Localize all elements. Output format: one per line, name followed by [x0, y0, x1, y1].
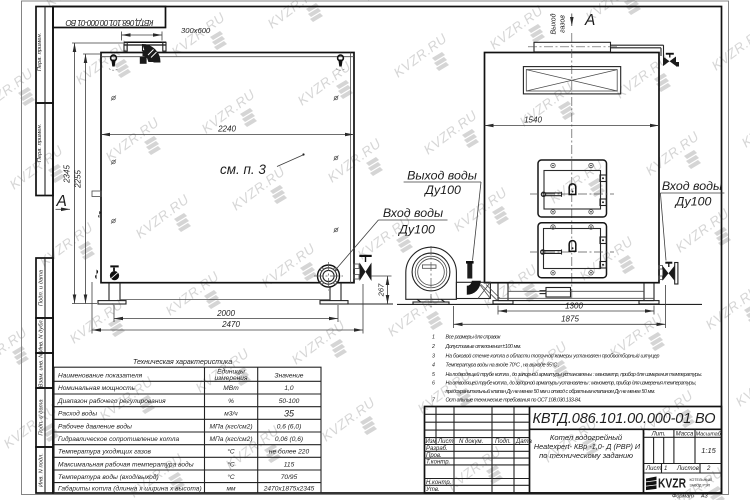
svg-text:по техническому заданию: по техническому заданию: [539, 451, 633, 460]
svg-text:Значение: Значение: [275, 373, 304, 380]
svg-text:1300: 1300: [565, 301, 583, 310]
svg-text:Листов: Листов: [676, 466, 699, 472]
svg-text:Формат: Формат: [672, 494, 694, 500]
svg-text:На подводящей трубе котла: На подводящей трубе котла , до запорной …: [446, 371, 703, 378]
svg-text:115: 115: [284, 461, 295, 468]
svg-text:Котел водогрейный: Котел водогрейный: [550, 433, 623, 442]
svg-text:2: 2: [431, 344, 435, 350]
svg-text:Пров.: Пров.: [426, 453, 442, 459]
svg-text:1,0: 1,0: [284, 385, 293, 392]
svg-text:Лит.: Лит.: [651, 431, 666, 437]
svg-text:Лист: Лист: [645, 466, 661, 472]
svg-text:1: 1: [432, 335, 435, 341]
svg-text:Инв. N дубл.: Инв. N дубл.: [39, 319, 45, 353]
svg-text:Ду100: Ду100: [674, 195, 712, 209]
svg-text:м3/ч: м3/ч: [224, 411, 238, 418]
svg-text:Разраб.: Разраб.: [426, 446, 448, 452]
svg-text:35: 35: [284, 409, 295, 419]
svg-text:Инв. N подл.: Инв. N подл.: [39, 453, 45, 487]
svg-text:измерения: измерения: [215, 375, 248, 382]
svg-text:предохранительный клапан Ду: предохранительный клапан Ду не менее 50 …: [446, 388, 656, 395]
svg-text:%: %: [228, 398, 234, 405]
svg-text:Перв. примен.: Перв. примен.: [37, 33, 43, 72]
svg-text:Максимальная рабочая температу: Максимальная рабочая температура воды: [58, 460, 194, 468]
svg-text:А: А: [56, 193, 67, 210]
svg-text:А: А: [584, 12, 595, 29]
svg-text:Изм: Изм: [426, 439, 437, 445]
svg-text:Наименование показателя: Наименование показателя: [58, 373, 143, 380]
svg-text:Подп. и дата: Подп. и дата: [39, 399, 45, 436]
svg-text:Взам. инв. N: Взам. инв. N: [39, 353, 45, 388]
svg-text:0,06 (0,6): 0,06 (0,6): [275, 436, 303, 443]
svg-text:2470х1875х2345: 2470х1875х2345: [263, 485, 315, 492]
svg-text:Т.контр.: Т.контр.: [426, 460, 450, 466]
svg-text:КВТД.086.101.00.000-01 ВО: КВТД.086.101.00.000-01 ВО: [533, 411, 716, 427]
svg-text:1: 1: [664, 466, 667, 472]
svg-text:Ост альные технические требо: Ост альные технические требования по ОСТ…: [446, 397, 582, 403]
svg-text:2345: 2345: [63, 165, 72, 184]
svg-text:ЗАВОД РЭП: ЗАВОД РЭП: [690, 484, 711, 488]
svg-text:1:15: 1:15: [701, 446, 716, 455]
svg-text:Ду100: Ду100: [423, 183, 461, 197]
svg-text:°С: °С: [227, 448, 235, 456]
svg-text:Диапазон рабочего регулировани: Диапазон рабочего регулирования: [57, 397, 166, 405]
svg-text:Габариты котла (длинна х ширин: Габариты котла (длинна х ширина х высота…: [58, 484, 202, 492]
svg-text:Ду100: Ду100: [397, 223, 435, 237]
svg-text:Лист: Лист: [437, 439, 453, 445]
svg-text:На боковой стенке котла в обла: На боковой стенке котла в области топочн…: [446, 352, 660, 359]
svg-text:Подп. и дата: Подп. и дата: [39, 269, 45, 306]
svg-text:см. п. 3: см. п. 3: [220, 162, 266, 177]
svg-text:Дата: Дата: [515, 439, 532, 445]
svg-text:°С: °С: [227, 473, 235, 481]
svg-text:КВТД.068.101.00.000-01 ВО: КВТД.068.101.00.000-01 ВО: [66, 18, 154, 27]
svg-text:4: 4: [432, 363, 435, 369]
svg-text:Допустимые отклонения ±100 мм: Допустимые отклонения ±100 мм.: [445, 344, 522, 350]
svg-text:Н.контр.: Н.контр.: [426, 480, 451, 486]
svg-text:2: 2: [706, 466, 711, 472]
svg-text:мм: мм: [226, 485, 236, 492]
svg-text:Температура уходящих газов: Температура уходящих газов: [58, 448, 151, 456]
svg-text:300х600: 300х600: [181, 26, 211, 35]
svg-text:267: 267: [377, 283, 386, 297]
svg-text:50-100: 50-100: [279, 398, 300, 405]
svg-text:0,6 (6,0): 0,6 (6,0): [277, 423, 302, 430]
svg-text:Heatexpert- КВр -1,0- Д (РВР): Heatexpert- КВр -1,0- Д (РВР) И: [534, 442, 641, 451]
svg-text:МПа (кгс/см2): МПа (кгс/см2): [209, 436, 252, 443]
svg-text:Вход воды: Вход воды: [662, 179, 722, 193]
svg-text:МПа (кгс/см2): МПа (кгс/см2): [209, 423, 252, 430]
svg-text:70/95: 70/95: [281, 474, 298, 481]
svg-text:2000: 2000: [216, 309, 235, 318]
svg-text:Масштаб: Масштаб: [696, 431, 722, 437]
svg-text:газов: газов: [560, 15, 567, 33]
svg-text:Выход: Выход: [550, 13, 558, 34]
svg-text:Подп.: Подп.: [495, 439, 511, 445]
svg-text:Выход воды: Выход воды: [407, 169, 477, 183]
svg-text:А3: А3: [700, 494, 709, 500]
svg-text:Номинальная мощность: Номинальная мощность: [58, 385, 136, 392]
svg-text:Температура воды на входе 70°: Температура воды на входе 70°С , на выхо…: [446, 363, 560, 369]
svg-text:не более 220: не более 220: [269, 448, 310, 456]
svg-text:2240: 2240: [217, 125, 236, 134]
svg-text:2255: 2255: [74, 170, 83, 189]
svg-text:KVZR: KVZR: [658, 477, 686, 491]
svg-text:2470: 2470: [221, 320, 240, 329]
svg-text:1875: 1875: [561, 315, 579, 324]
svg-text:На отводящей трубе котла , д: На отводящей трубе котла , до запорной а…: [446, 379, 697, 386]
svg-text:Все размеры для справок: Все размеры для справок: [446, 335, 501, 341]
svg-text:Рабочее давление воды: Рабочее давление воды: [58, 422, 132, 430]
svg-text:МВт: МВт: [223, 385, 239, 392]
svg-text:Масса: Масса: [676, 431, 694, 437]
svg-text:3: 3: [432, 353, 435, 359]
svg-text:1540: 1540: [524, 116, 542, 125]
svg-text:N докум.: N докум.: [459, 439, 483, 445]
svg-text:Гидравлическое сопротивление к: Гидравлическое сопротивление котла: [58, 435, 179, 443]
svg-text:Температура воды (вход/выход): Температура воды (вход/выход): [58, 473, 159, 481]
svg-text:Вход воды: Вход воды: [383, 206, 443, 220]
svg-text:6: 6: [432, 380, 435, 386]
svg-text:Перв. примен.: Перв. примен.: [37, 124, 43, 163]
svg-text:°С: °С: [227, 460, 235, 468]
svg-text:Техническая характеристика: Техническая характеристика: [133, 359, 232, 366]
svg-text:5: 5: [432, 372, 435, 378]
svg-text:Утв.: Утв.: [425, 487, 440, 493]
svg-text:КОТЕЛЬНЫЙ: КОТЕЛЬНЫЙ: [690, 478, 713, 482]
svg-text:Расход воды: Расход воды: [58, 410, 97, 418]
